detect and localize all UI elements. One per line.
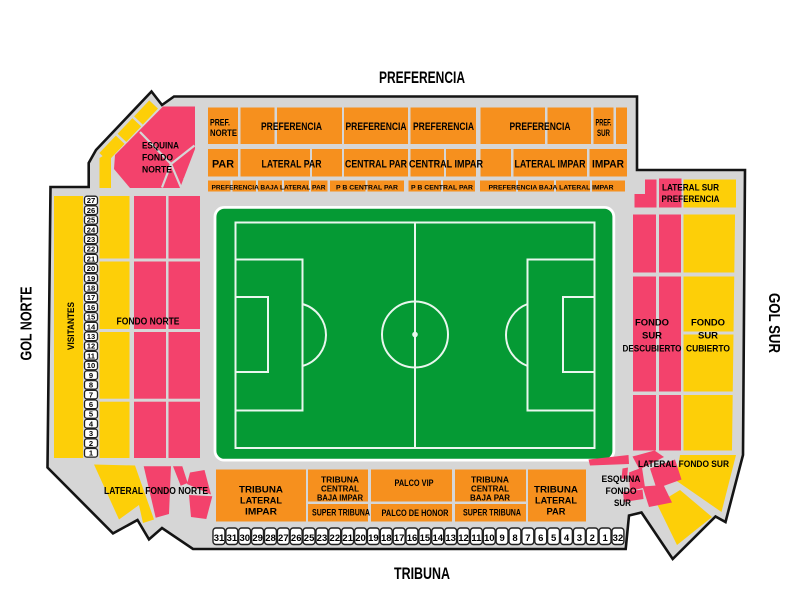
svg-text:PALCO VIP: PALCO VIP xyxy=(395,478,435,489)
svg-text:20: 20 xyxy=(87,264,95,273)
svg-text:3: 3 xyxy=(89,429,93,438)
svg-text:IMPAR: IMPAR xyxy=(245,507,278,517)
svg-text:NORTE: NORTE xyxy=(142,165,172,176)
svg-text:VISITANTES: VISITANTES xyxy=(66,302,77,350)
svg-text:LATERAL: LATERAL xyxy=(535,496,578,506)
svg-text:12: 12 xyxy=(458,533,469,544)
svg-text:LATERAL FONDO SUR: LATERAL FONDO SUR xyxy=(638,459,729,470)
svg-text:11: 11 xyxy=(471,533,482,544)
svg-text:3: 3 xyxy=(577,533,582,544)
svg-text:14: 14 xyxy=(87,322,96,331)
svg-text:22: 22 xyxy=(87,245,95,254)
svg-text:24: 24 xyxy=(87,225,96,234)
svg-text:TRIBUNA: TRIBUNA xyxy=(321,476,359,485)
svg-text:FONDO: FONDO xyxy=(606,486,637,497)
svg-text:NORTE: NORTE xyxy=(210,128,237,139)
svg-text:GOL SUR: GOL SUR xyxy=(765,293,782,353)
svg-text:SUR: SUR xyxy=(614,498,631,509)
svg-text:PREFERENCIA: PREFERENCIA xyxy=(413,121,474,133)
svg-text:LATERAL PAR: LATERAL PAR xyxy=(262,159,322,171)
svg-text:TRIBUNA: TRIBUNA xyxy=(471,476,509,485)
svg-text:1: 1 xyxy=(602,533,608,544)
svg-text:P B CENTRAL PAR: P B CENTRAL PAR xyxy=(411,185,473,192)
svg-text:FONDO NORTE: FONDO NORTE xyxy=(117,317,180,328)
svg-text:PREFERENCIA BAJA LATERAL PAR: PREFERENCIA BAJA LATERAL PAR xyxy=(212,185,326,192)
svg-text:PREFERENCIA: PREFERENCIA xyxy=(379,69,465,87)
svg-text:18: 18 xyxy=(87,284,95,293)
svg-text:SUR: SUR xyxy=(698,331,718,342)
svg-text:DESCUBIERTO: DESCUBIERTO xyxy=(623,344,682,355)
svg-text:26: 26 xyxy=(291,533,302,544)
svg-text:7: 7 xyxy=(89,390,93,399)
svg-text:CENTRAL IMPAR: CENTRAL IMPAR xyxy=(409,159,483,171)
svg-text:12: 12 xyxy=(87,342,95,351)
svg-text:25: 25 xyxy=(87,216,96,225)
svg-text:6: 6 xyxy=(538,533,543,544)
svg-text:20: 20 xyxy=(355,533,366,544)
svg-text:PREFERENCIA: PREFERENCIA xyxy=(261,121,322,133)
svg-text:31: 31 xyxy=(214,533,225,544)
svg-text:26: 26 xyxy=(87,206,95,215)
svg-text:IMPAR: IMPAR xyxy=(592,159,624,171)
svg-text:PREFERENCIA: PREFERENCIA xyxy=(662,194,720,205)
svg-text:19: 19 xyxy=(87,274,95,283)
svg-text:17: 17 xyxy=(87,293,95,302)
svg-text:8: 8 xyxy=(89,381,93,390)
svg-text:FONDO: FONDO xyxy=(635,318,669,329)
svg-text:2: 2 xyxy=(89,439,93,448)
svg-text:14: 14 xyxy=(433,533,444,544)
svg-text:CENTRAL PAR: CENTRAL PAR xyxy=(345,159,407,171)
svg-text:22: 22 xyxy=(330,533,341,544)
svg-text:29: 29 xyxy=(252,533,263,544)
svg-text:BAJA PAR: BAJA PAR xyxy=(470,494,510,503)
svg-text:PREF.: PREF. xyxy=(210,118,230,129)
svg-text:6: 6 xyxy=(89,400,93,409)
svg-text:21: 21 xyxy=(342,533,353,544)
svg-text:PALCO DE HONOR: PALCO DE HONOR xyxy=(382,508,449,519)
svg-text:13: 13 xyxy=(445,533,456,544)
svg-text:7: 7 xyxy=(525,533,530,544)
svg-text:GOL NORTE: GOL NORTE xyxy=(19,287,36,361)
svg-text:30: 30 xyxy=(239,533,250,544)
svg-text:FONDO: FONDO xyxy=(691,318,725,329)
svg-text:CENTRAL: CENTRAL xyxy=(471,485,509,494)
svg-text:ESQUINA: ESQUINA xyxy=(602,474,641,485)
svg-text:BAJA IMPAR: BAJA IMPAR xyxy=(317,494,363,503)
svg-text:23: 23 xyxy=(87,235,95,244)
svg-text:PREFERENCIA: PREFERENCIA xyxy=(346,121,407,133)
svg-text:10: 10 xyxy=(484,533,495,544)
svg-text:19: 19 xyxy=(368,533,379,544)
svg-text:CENTRAL: CENTRAL xyxy=(321,485,359,494)
svg-text:9: 9 xyxy=(499,533,504,544)
svg-text:SUPER TRIBUNA: SUPER TRIBUNA xyxy=(463,508,521,518)
svg-text:8: 8 xyxy=(512,533,517,544)
svg-text:17: 17 xyxy=(394,533,405,544)
svg-text:LATERAL: LATERAL xyxy=(240,496,283,506)
svg-text:28: 28 xyxy=(265,533,276,544)
svg-text:LATERAL SUR: LATERAL SUR xyxy=(662,183,719,194)
svg-text:16: 16 xyxy=(407,533,418,544)
svg-text:13: 13 xyxy=(87,332,95,341)
svg-text:4: 4 xyxy=(564,533,570,544)
svg-text:15: 15 xyxy=(420,533,431,544)
svg-text:PAR: PAR xyxy=(547,507,567,517)
svg-text:18: 18 xyxy=(381,533,392,544)
svg-text:27: 27 xyxy=(87,196,95,205)
svg-text:PREFERENCIA: PREFERENCIA xyxy=(510,121,571,133)
svg-text:SUR: SUR xyxy=(642,331,662,342)
svg-text:SUPER TRIBUNA: SUPER TRIBUNA xyxy=(312,508,370,518)
svg-text:10: 10 xyxy=(87,361,95,370)
svg-text:21: 21 xyxy=(87,254,96,263)
svg-text:15: 15 xyxy=(87,313,96,322)
svg-text:P B CENTRAL PAR: P B CENTRAL PAR xyxy=(336,185,398,192)
svg-text:FONDO: FONDO xyxy=(142,153,173,164)
svg-text:LATERAL IMPAR: LATERAL IMPAR xyxy=(515,159,586,171)
svg-text:27: 27 xyxy=(278,533,289,544)
svg-text:9: 9 xyxy=(89,371,93,380)
svg-text:31: 31 xyxy=(227,533,238,544)
svg-text:2: 2 xyxy=(590,533,595,544)
svg-text:CUBIERTO: CUBIERTO xyxy=(686,344,730,355)
svg-text:PREF.: PREF. xyxy=(596,118,612,129)
svg-text:PAR: PAR xyxy=(212,159,234,171)
svg-text:11: 11 xyxy=(87,351,96,360)
svg-text:SUR: SUR xyxy=(597,128,610,139)
svg-text:ESQUINA: ESQUINA xyxy=(142,141,179,152)
svg-text:25: 25 xyxy=(304,533,315,544)
svg-text:TRIBUNA: TRIBUNA xyxy=(239,485,284,495)
svg-text:32: 32 xyxy=(613,533,624,544)
svg-text:LATERAL FONDO NORTE: LATERAL FONDO NORTE xyxy=(104,486,208,497)
svg-text:TRIBUNA: TRIBUNA xyxy=(394,565,450,583)
svg-text:TRIBUNA: TRIBUNA xyxy=(534,485,579,495)
svg-text:PREFERENCIA BAJA LATERAL IMPAR: PREFERENCIA BAJA LATERAL IMPAR xyxy=(489,185,614,192)
svg-text:5: 5 xyxy=(551,533,557,544)
svg-text:23: 23 xyxy=(317,533,328,544)
svg-text:16: 16 xyxy=(87,303,95,312)
